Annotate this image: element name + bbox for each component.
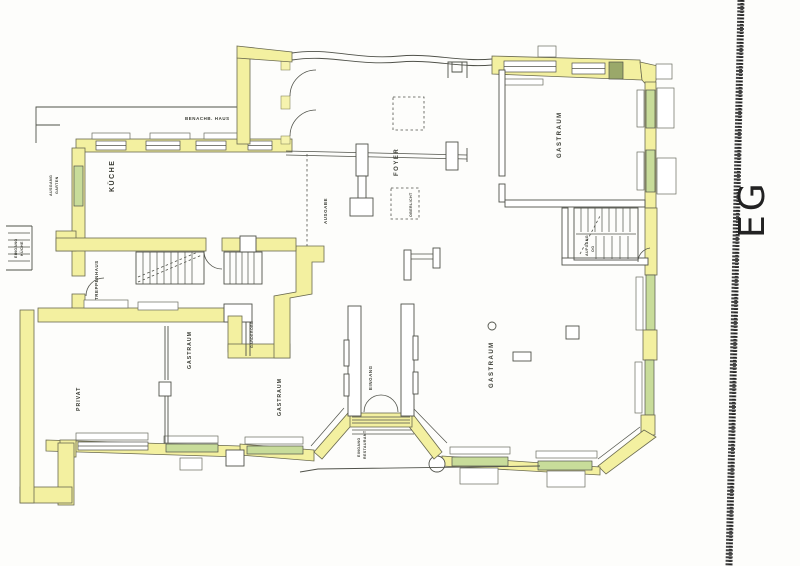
skylight-1 bbox=[393, 97, 424, 130]
wall-kitchen-south-a bbox=[56, 238, 206, 251]
wall-stub-foot bbox=[350, 198, 373, 216]
scan-artifacts: EG bbox=[729, 0, 773, 566]
label-ausgang-garten-2: GARTEN bbox=[55, 176, 59, 194]
wall-foyer-west-outer bbox=[237, 58, 250, 144]
label-ausgabe: AUSGABE bbox=[323, 198, 328, 224]
stair-internal-left bbox=[136, 252, 204, 284]
skylight-2 bbox=[391, 188, 419, 219]
column-1 bbox=[356, 144, 368, 176]
pillar-south bbox=[226, 450, 244, 466]
stair-exterior-west bbox=[6, 226, 32, 270]
scan-edge-line bbox=[729, 0, 741, 566]
label-kueche: KÜCHE bbox=[107, 160, 116, 192]
column-round bbox=[429, 456, 445, 472]
light-shaft-3 bbox=[180, 458, 202, 470]
label-garderobe: GARDEROBE bbox=[250, 321, 254, 348]
label-eingang-restaurant-2: RESTAURANT bbox=[363, 430, 367, 459]
entrance-pillar-right bbox=[401, 304, 418, 416]
stair-internal-centre bbox=[224, 252, 262, 284]
top-wall-pier bbox=[538, 46, 556, 57]
fixture-rect bbox=[513, 352, 531, 361]
label-eingang-kueche-2: KÜCHE bbox=[19, 241, 24, 256]
exterior-walls-highlighted bbox=[20, 46, 676, 505]
wall-west-privat bbox=[20, 310, 34, 503]
scanned-page: KÜCHE FOYER AUSGABE OBERLICHT GASTRAUM G… bbox=[0, 0, 800, 566]
fixture-circle bbox=[488, 322, 496, 330]
label-nachbar-haus: BENACHB. HAUS bbox=[185, 116, 230, 121]
label-aufgang-1: AUFGANG bbox=[585, 235, 589, 256]
label-eingang-kueche-1: EINGANG bbox=[14, 238, 18, 258]
light-shaft-1 bbox=[460, 468, 498, 484]
wall-kitchen-south-b bbox=[222, 238, 296, 251]
label-aufgang-2: OG bbox=[591, 246, 595, 252]
label-privat: PRIVAT bbox=[76, 387, 82, 411]
floor-plan-drawing: KÜCHE FOYER AUSGABE OBERLICHT GASTRAUM G… bbox=[0, 0, 800, 566]
light-shaft-2 bbox=[547, 471, 585, 487]
entrance-door-left bbox=[364, 395, 381, 412]
label-eingang: EINGANG bbox=[368, 365, 373, 390]
label-gastraum-centre-left: GASTRAUM bbox=[187, 331, 193, 369]
window-bay-1 bbox=[657, 88, 674, 128]
door-dark-panel bbox=[609, 62, 623, 79]
interior-walls bbox=[159, 70, 648, 472]
stair-upper-floor bbox=[574, 208, 638, 260]
column-2 bbox=[446, 142, 458, 170]
label-foyer: FOYER bbox=[394, 148, 400, 176]
label-gastraum-bottom-right: GASTRAUM bbox=[489, 341, 495, 388]
wall-foyer-south-jog bbox=[274, 246, 324, 358]
label-gastraum-centre: GASTRAUM bbox=[277, 378, 283, 416]
door-stair-hall bbox=[204, 251, 222, 269]
entrance-door-right bbox=[381, 395, 398, 412]
label-treppenhaus: TREPPENHAUS bbox=[94, 260, 99, 300]
label-ausgang-garten-1: AUSGANG bbox=[49, 175, 53, 196]
fixture-square bbox=[566, 326, 579, 339]
label-gastraum-top-right: GASTRAUM bbox=[557, 111, 563, 158]
floor-annotation-eg: EG bbox=[732, 179, 773, 238]
entrance-pillar-left bbox=[344, 306, 361, 416]
door-foyer-1 bbox=[290, 70, 316, 96]
label-oberlicht: OBERLICHT bbox=[409, 192, 413, 217]
divider-node bbox=[159, 382, 171, 396]
door-foyer-2 bbox=[290, 110, 316, 136]
window-bay-2 bbox=[657, 158, 676, 194]
label-eingang-restaurant-1: EINGANG bbox=[357, 437, 361, 457]
